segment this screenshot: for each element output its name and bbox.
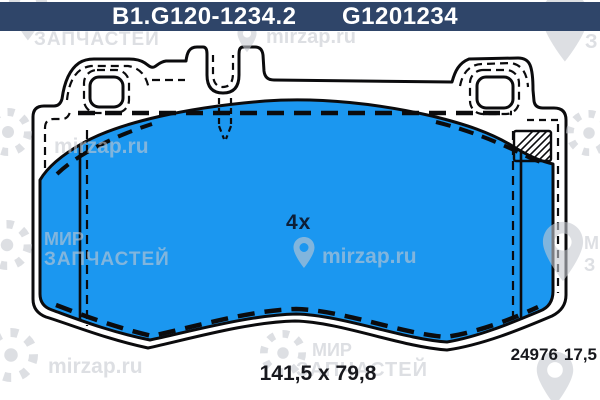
watermark-site-text: mirzap.ru <box>322 246 417 267</box>
right-ear-hole <box>477 77 513 108</box>
watermark-pin-icon <box>540 220 586 285</box>
part-number-secondary: G1201234 <box>342 3 458 31</box>
watermark-gear-icon <box>0 108 32 156</box>
watermark-brand-fragment: З <box>584 256 595 274</box>
wva-thickness-label: 2497617,5 <box>505 345 597 365</box>
catalog-part-image: МИР ЗАПЧАСТЕЙ mirzap.ru З mirzap.ru МИР … <box>0 0 600 400</box>
watermark-brand-text: МИР <box>312 341 352 359</box>
watermark-brand-fragment: З <box>585 32 598 52</box>
u-notch-inner-dashed <box>213 55 233 87</box>
part-number-primary: B1.G120-1234.2 <box>112 3 296 31</box>
watermark-brand-text: МИР <box>44 230 84 248</box>
watermark-site-text: mirzap.ru <box>48 356 143 377</box>
watermark-brand-text: ЗАПЧАСТЕЙ <box>34 30 160 49</box>
quantity-label: 4x <box>286 211 311 235</box>
thickness-value: 17,5 <box>564 345 597 364</box>
dimensions-label: 141,5 x 79,8 <box>260 362 377 386</box>
watermark-brand-fragment: М <box>584 234 599 252</box>
watermark-site-text: mirzap.ru <box>54 136 149 157</box>
watermark-pin-icon <box>292 236 316 270</box>
watermark-gear-icon <box>566 110 600 156</box>
watermark-gear-icon <box>0 328 38 382</box>
watermark-brand-text: ЗАПЧАСТЕЙ <box>44 250 170 269</box>
part-number-header: B1.G120-1234.2 G1201234 <box>0 2 600 31</box>
watermark-gear-icon <box>0 220 32 270</box>
left-ear-hole <box>90 77 123 107</box>
wva-number: 24976 <box>511 345 558 364</box>
